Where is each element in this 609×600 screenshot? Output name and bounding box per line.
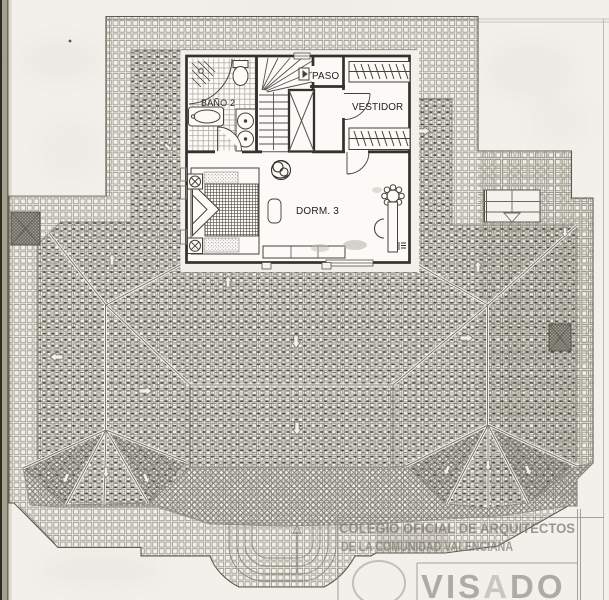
svg-text:DORM. 3: DORM. 3 (296, 206, 339, 217)
svg-text:PASO: PASO (312, 71, 339, 82)
svg-text:COLEGIO OFICIAL DE ARQUITECTOS: COLEGIO OFICIAL DE ARQUITECTOS (339, 521, 575, 536)
svg-text:VISADO: VISADO (421, 568, 566, 600)
svg-text:VESTIDOR: VESTIDOR (352, 102, 403, 113)
svg-text:BAÑO 2: BAÑO 2 (201, 98, 235, 108)
